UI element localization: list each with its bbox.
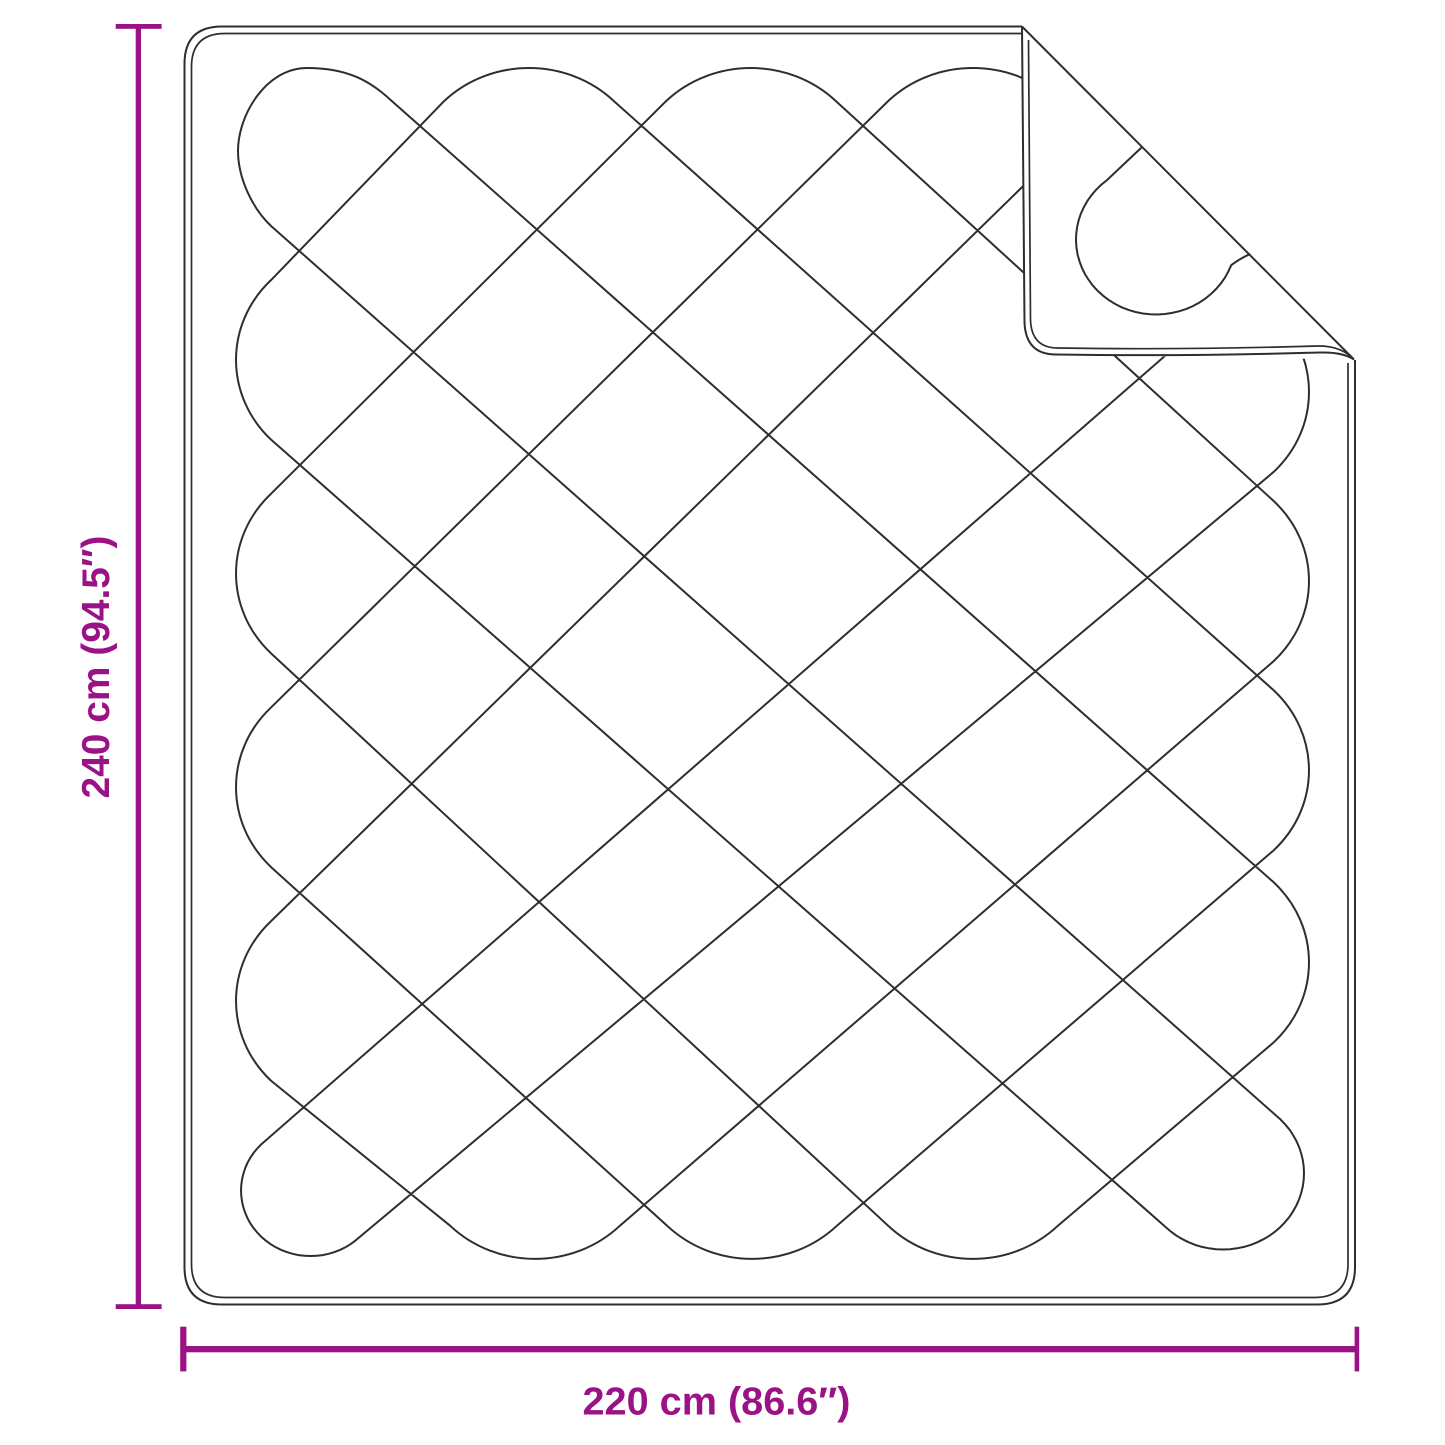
svg-text:220 cm (86.6″): 220 cm (86.6″) xyxy=(583,1381,851,1424)
svg-text:240 cm (94.5″): 240 cm (94.5″) xyxy=(75,536,118,799)
